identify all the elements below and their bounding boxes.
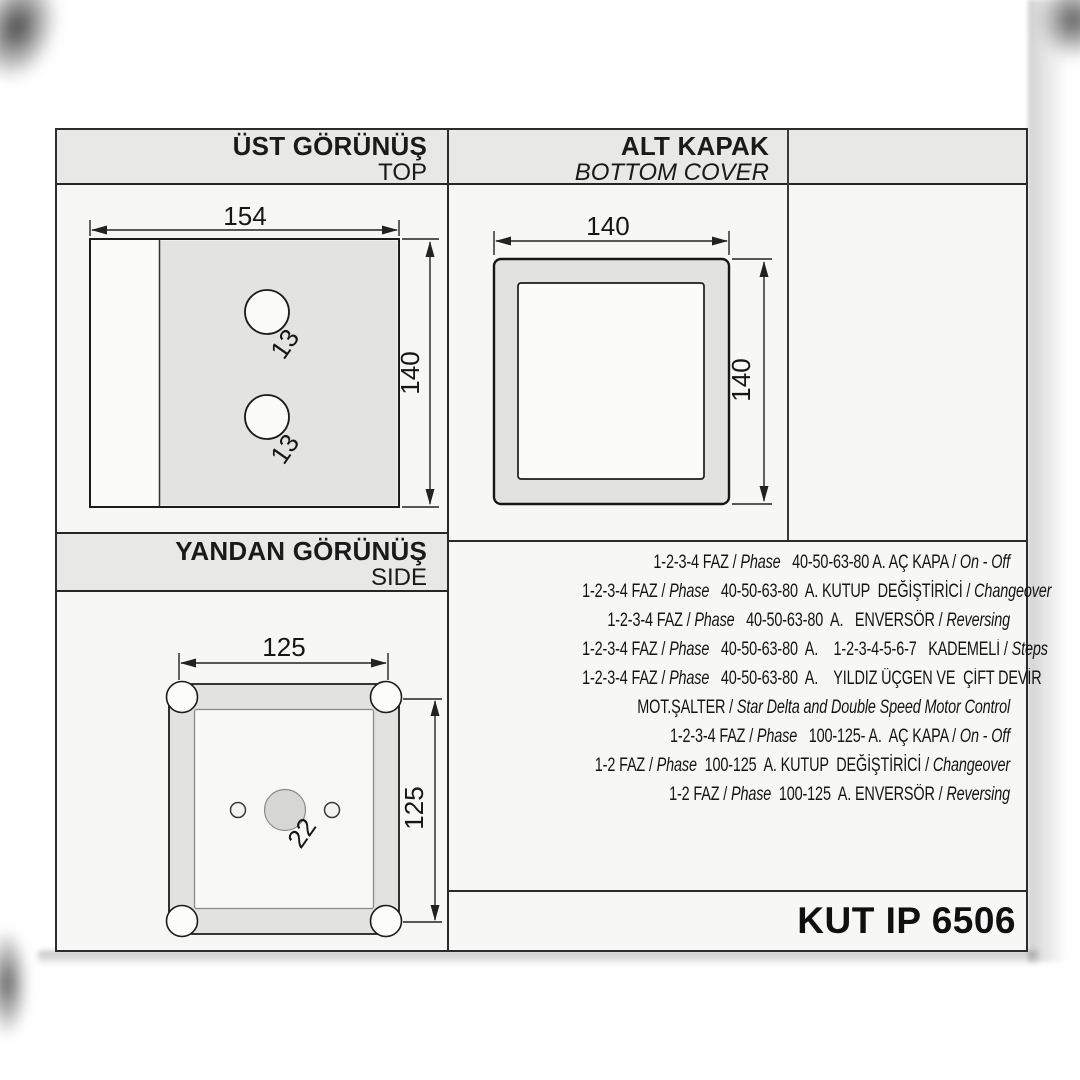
header-side-view-cell: YANDAN GÖRÜNÜŞ SIDE [57,534,437,590]
spec-list: 1-2-3-4 FAZ / Phase 40-50-63-80 A. AÇ KA… [447,542,1026,890]
bottom-cover-drawing: 140 140 [449,187,1028,542]
spec-line: 1-2 FAZ / Phase 100-125 A. ENVERSÖR / Re… [582,780,1010,809]
bottom-cover-height-label: 140 [726,358,756,401]
header-bottom-cover: ALT KAPAK BOTTOM COVER [449,130,779,183]
spec-line: 1-2-3-4 FAZ / Phase 40-50-63-80 A. KUTUP… [582,577,1010,606]
side-view-corner-post-tr [371,682,402,713]
header-top-view: ÜST GÖRÜNÜŞ TOP [57,130,437,183]
header-row-top: ÜST GÖRÜNÜŞ TOP ALT KAPAK BOTTOM COVER [57,130,1026,185]
side-view-small-hole-right [325,803,340,818]
top-view-width-label: 154 [223,201,266,231]
side-view-small-hole-left [231,803,246,818]
side-view-title-tr: YANDAN GÖRÜNÜŞ [57,537,427,565]
top-view-title-tr: ÜST GÖRÜNÜŞ [57,132,427,160]
spec-line: 1-2-3-4 FAZ / Phase 40-50-63-80 A. ENVER… [582,606,1010,635]
spec-line: 1-2-3-4 FAZ / Phase 40-50-63-80 A. AÇ KA… [582,548,1010,577]
top-view-shaded-area [160,241,398,506]
model-cell: KUT IP 6506 [447,892,1026,950]
bottom-cover-inner [518,283,704,479]
bottom-cover-width-label: 140 [586,211,629,241]
photo-smudge-top-left [0,0,71,91]
photo-smudge-bottom-left [0,928,28,1038]
top-view-height-label: 140 [395,351,425,394]
datasheet-page: ÜST GÖRÜNÜŞ TOP ALT KAPAK BOTTOM COVER Y… [55,128,1028,952]
model-number: KUT IP 6506 [797,900,1016,941]
spec-line: MOT.ŞALTER / Star Delta and Double Speed… [582,693,1010,722]
spec-line: 1-2-3-4 FAZ / Phase 40-50-63-80 A. YILDI… [582,664,1010,693]
side-view-width-label: 125 [262,632,305,662]
side-view-corner-post-br [371,906,402,937]
top-view-drawing: 13 13 154 140 [57,187,449,532]
spec-line: 1-2 FAZ / Phase 100-125 A. KUTUP DEĞİŞTİ… [582,751,1010,780]
top-view-title-en: TOP [57,160,427,185]
side-view-title-en: SIDE [57,565,427,590]
side-view-drawing: 22 125 125 [57,592,449,954]
spec-line: 1-2-3-4 FAZ / Phase 40-50-63-80 A. 1-2-3… [582,635,1010,664]
side-view-height-label: 125 [399,786,429,829]
photo-page-edge [1028,0,1068,962]
spec-line: 1-2-3-4 FAZ / Phase 100-125- A. AÇ KAPA … [582,722,1010,751]
side-view-corner-post-bl [167,906,198,937]
header-side-view: YANDAN GÖRÜNÜŞ SIDE [57,532,447,592]
bottom-cover-title-tr: ALT KAPAK [449,132,769,160]
bottom-cover-title-en: BOTTOM COVER [449,160,769,185]
side-view-corner-post-tl [167,682,198,713]
